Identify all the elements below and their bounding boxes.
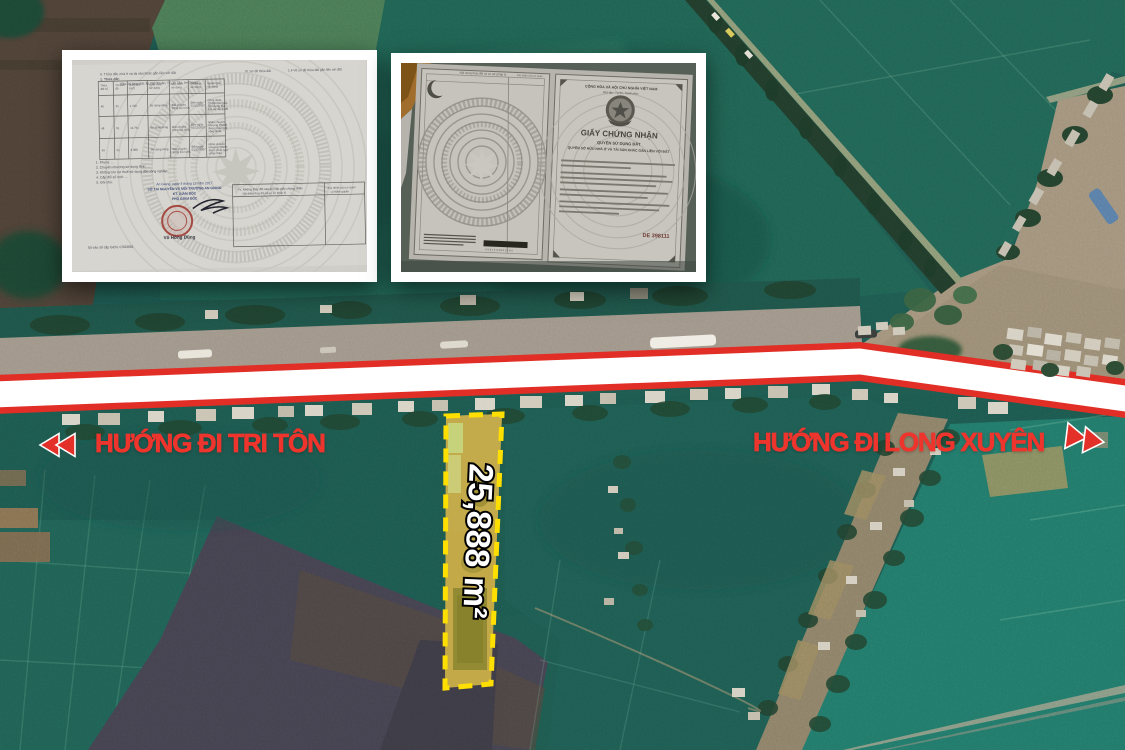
- svg-text:III. Sơ đồ thửa đất: III. Sơ đồ thửa đất: [245, 69, 271, 74]
- svg-text:01: 01: [117, 148, 121, 152]
- svg-text:46: 46: [101, 104, 105, 108]
- svg-text:01/12/2057: 01/12/2057: [191, 125, 206, 129]
- svg-text:01/12/2057: 01/12/2057: [192, 147, 207, 151]
- svg-text:trồng lúa nước: trồng lúa nước: [172, 128, 191, 132]
- svg-text:12.791: 12.791: [130, 126, 139, 130]
- svg-text:01: 01: [116, 126, 120, 130]
- svg-text:sử dụng: sử dụng: [149, 86, 160, 90]
- svg-text:01: 01: [116, 104, 120, 108]
- svg-text:trồng lúa nước: trồng lúa nước: [172, 106, 191, 110]
- svg-text:01/12/2057: 01/12/2057: [191, 103, 206, 107]
- svg-text:48: 48: [101, 126, 105, 130]
- svg-text:1.418: 1.418: [130, 104, 138, 108]
- svg-text:đồ: đồ: [115, 86, 119, 90]
- svg-text:Võ Hồng Dũng: Võ Hồng Dũng: [163, 235, 195, 241]
- svg-text:sử dụng: sử dụng: [171, 85, 182, 89]
- svg-text:DE 398111: DE 398111: [642, 233, 669, 240]
- svg-text:sử dụng: sử dụng: [207, 84, 218, 88]
- svg-text:4. Cấp đổi sổ mới: ...: 4. Cấp đổi sổ mới: ...: [96, 175, 128, 180]
- svg-text:Sử dụng riêng: Sử dụng riêng: [151, 147, 169, 151]
- svg-text:49: 49: [102, 148, 106, 152]
- svg-text:có thẩm quyền: có thẩm quyền: [331, 189, 350, 193]
- svg-text:Sử dụng riêng: Sử dụng riêng: [150, 103, 168, 107]
- svg-text:1. Phụ lý: ...: 1. Phụ lý: ...: [96, 160, 114, 164]
- svg-text:công nhận: công nhận: [209, 151, 223, 155]
- svg-text:PHÓ GIÁM ĐỐC: PHÓ GIÁM ĐỐC: [172, 195, 198, 201]
- svg-text:tiền sử dụng đất: tiền sử dụng đất: [208, 107, 229, 111]
- svg-text:Sử dụng riêng: Sử dụng riêng: [150, 125, 168, 129]
- svg-text:KT. GIÁM ĐỐC: KT. GIÁM ĐỐC: [173, 190, 197, 195]
- svg-text:sử dụng: sử dụng: [190, 85, 201, 89]
- svg-text:9.988: 9.988: [131, 148, 139, 152]
- svg-text:5. Ghi chú:: 5. Ghi chú:: [96, 180, 113, 184]
- svg-text:(m²): (m²): [129, 86, 134, 90]
- svg-text:đất số: đất số: [100, 87, 108, 91]
- svg-text:công nhận: công nhận: [208, 129, 222, 133]
- svg-text:trồng lúa nước: trồng lúa nước: [173, 150, 192, 154]
